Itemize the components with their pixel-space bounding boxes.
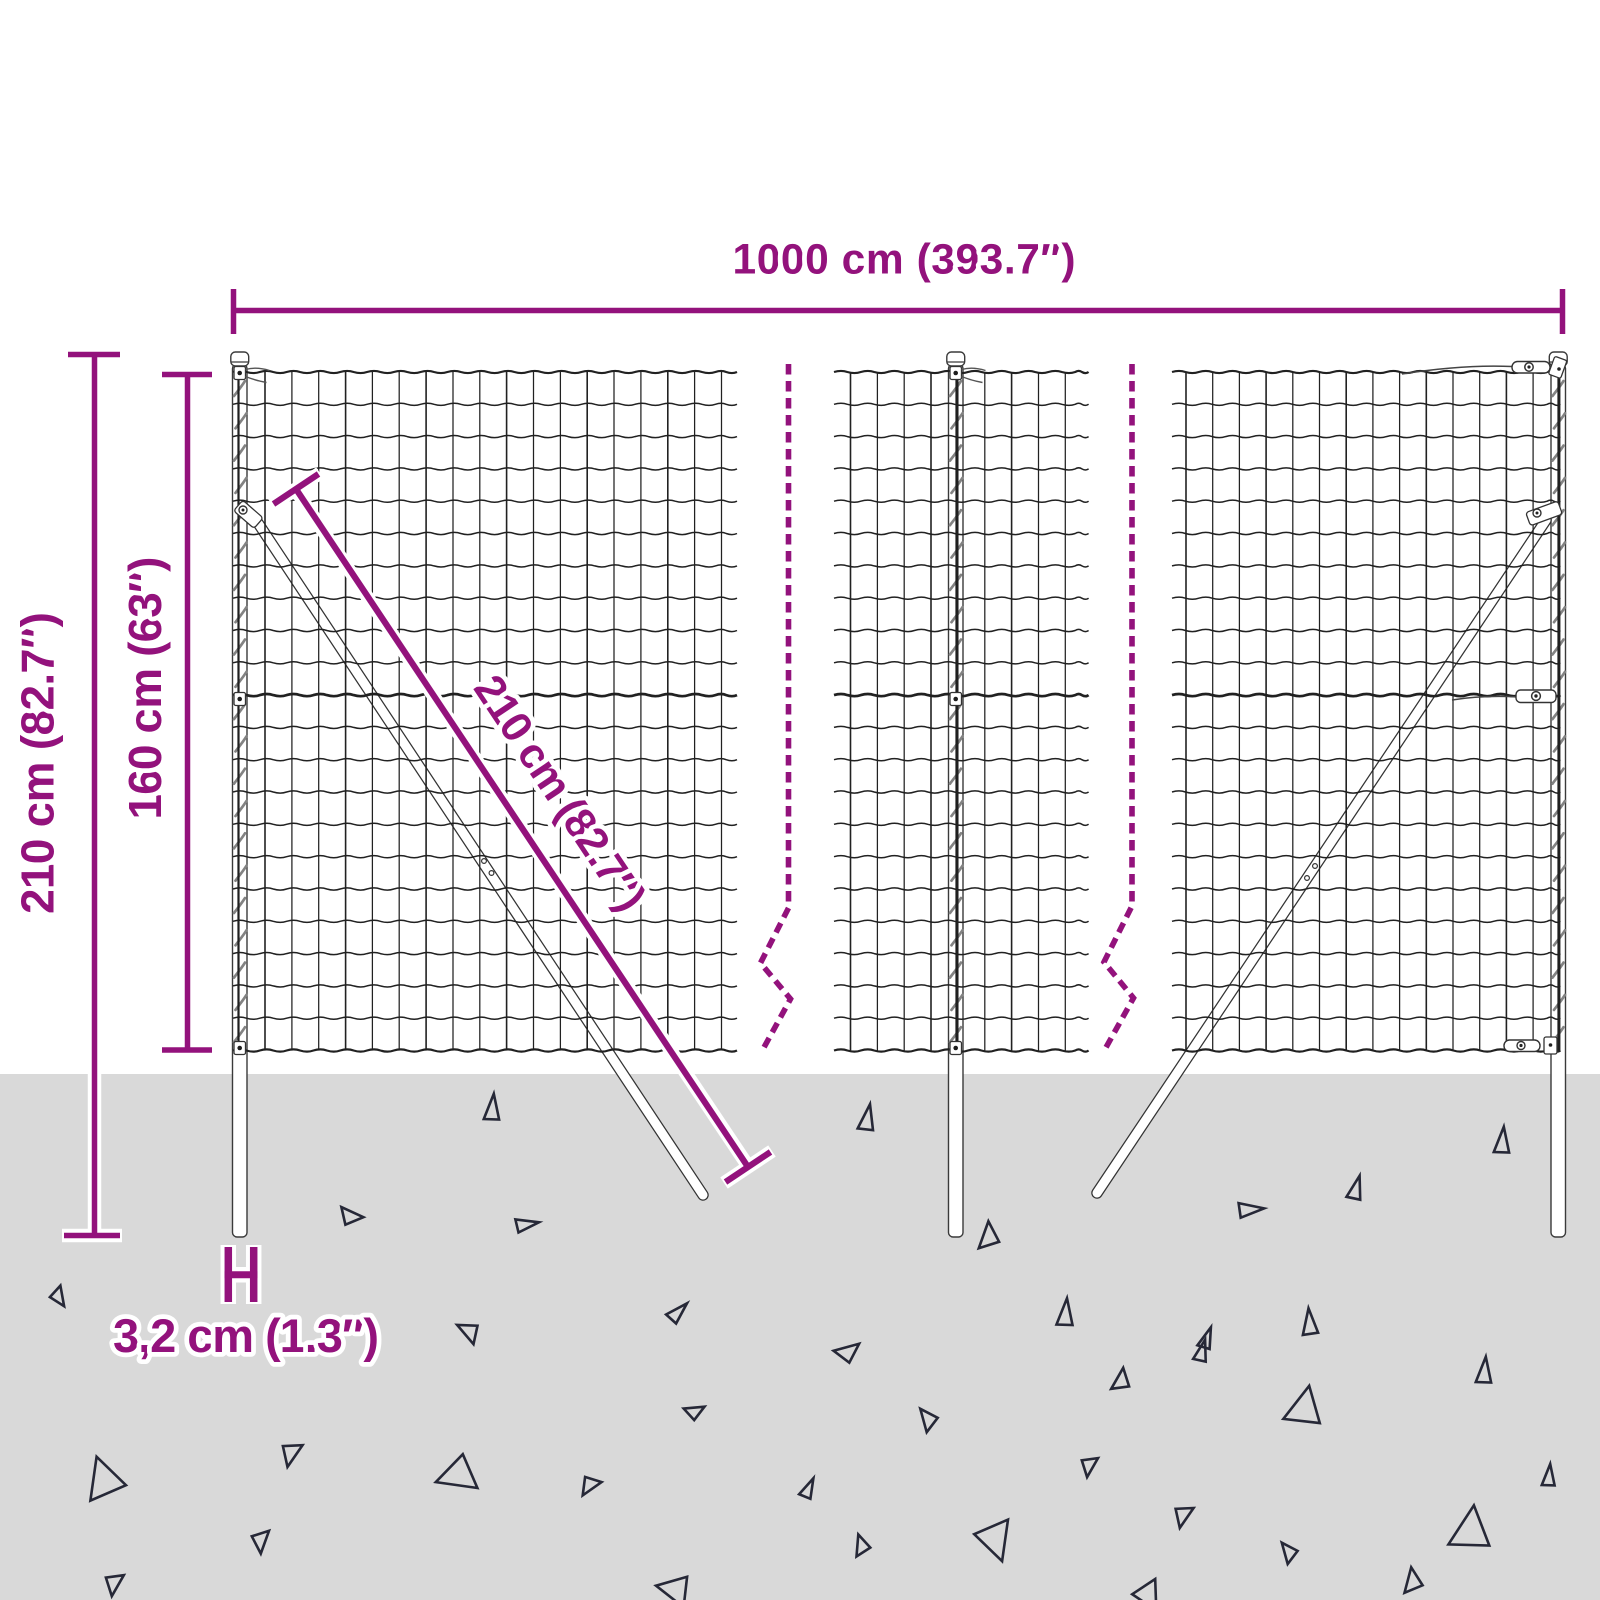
svg-text:160 cm (63″): 160 cm (63″): [119, 557, 171, 820]
svg-text:1000 cm (393.7″): 1000 cm (393.7″): [733, 237, 1076, 284]
svg-text:3,2 cm (1.3″): 3,2 cm (1.3″): [113, 1309, 379, 1362]
svg-text:210 cm (82.7″): 210 cm (82.7″): [12, 612, 64, 914]
